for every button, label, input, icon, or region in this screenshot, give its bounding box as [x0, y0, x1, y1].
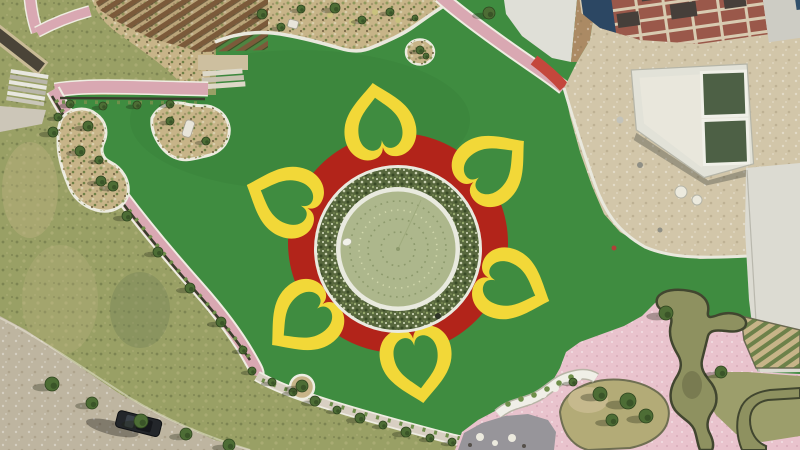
- round-tank: [692, 195, 702, 205]
- round-tank: [675, 186, 687, 198]
- debris: [658, 228, 663, 233]
- tree-canopy-core: [189, 287, 194, 292]
- tree-canopy-core: [301, 385, 306, 390]
- tree-canopy-core: [405, 431, 410, 436]
- bench-plant: [518, 396, 524, 402]
- tree-canopy-core: [429, 437, 433, 441]
- water-tank-north: [701, 71, 747, 117]
- tree-canopy-core: [300, 8, 304, 12]
- bench-plant: [531, 392, 537, 398]
- grass-dark-patch: [110, 272, 170, 348]
- tree-canopy-core: [314, 400, 319, 405]
- tree-canopy-core: [169, 103, 173, 107]
- tree-canopy-core: [626, 399, 633, 406]
- debris: [612, 246, 617, 251]
- tree-canopy-core: [126, 215, 131, 220]
- tree-canopy-core: [488, 12, 493, 17]
- fountain-pond: [314, 165, 482, 333]
- tree-canopy-core: [451, 441, 455, 445]
- tree-canopy-core: [112, 185, 117, 190]
- grass-tuft: [372, 9, 378, 15]
- tree-canopy-core: [136, 104, 140, 108]
- tree-canopy-core: [261, 13, 266, 18]
- debris: [637, 162, 643, 168]
- paving-object: [522, 444, 526, 448]
- tree-canopy-core: [382, 424, 386, 428]
- tree-canopy-core: [157, 251, 162, 256]
- water-tank-south: [703, 119, 749, 165]
- tree-canopy-core: [389, 11, 393, 15]
- tree-canopy-core: [220, 321, 225, 326]
- debris: [617, 117, 624, 124]
- tree-canopy-core: [359, 417, 364, 422]
- tree-canopy-core: [280, 26, 284, 30]
- tree-canopy-core: [51, 383, 57, 389]
- terrace: [198, 55, 248, 70]
- tree-canopy-core: [334, 7, 339, 12]
- tree-canopy-core: [57, 116, 61, 120]
- grass-tuft: [395, 17, 401, 23]
- bench-plant: [556, 380, 562, 386]
- bench-plant: [505, 401, 511, 407]
- tree-canopy-core: [720, 371, 725, 376]
- tree-canopy-core: [69, 103, 73, 107]
- tree-canopy-core: [205, 140, 209, 144]
- tree-canopy-core: [169, 120, 173, 124]
- tree-canopy-core: [87, 125, 92, 130]
- tree-canopy-core: [185, 433, 190, 438]
- tree-canopy-core: [425, 55, 428, 58]
- path-east-west: [55, 87, 208, 90]
- bench-plant: [544, 386, 550, 392]
- tree-canopy-core: [102, 105, 106, 109]
- tree-canopy-core: [271, 381, 275, 385]
- dry-grass-patch: [2, 142, 58, 238]
- tree-canopy-core: [228, 444, 233, 449]
- paving-object: [468, 443, 472, 447]
- tree-canopy-core: [419, 49, 423, 53]
- tree-canopy-core: [665, 312, 671, 318]
- tree-canopy-core: [611, 419, 616, 424]
- tree-canopy-core: [98, 159, 102, 163]
- tree-canopy-core: [414, 17, 417, 20]
- tree-canopy-core: [251, 370, 255, 374]
- tree-canopy-core: [361, 19, 365, 23]
- pond-center-jet: [396, 247, 400, 251]
- paving-object: [476, 433, 484, 441]
- tree-canopy-core: [79, 150, 84, 155]
- tree-canopy-core: [645, 415, 651, 421]
- tree-canopy-core: [572, 381, 576, 385]
- pond-dark-object: [435, 313, 441, 319]
- tree-canopy-core: [242, 349, 246, 353]
- tree-canopy-core: [140, 420, 146, 426]
- tree-canopy-core: [91, 402, 96, 407]
- channel-deep: [682, 371, 702, 399]
- tree-canopy-core: [100, 180, 105, 185]
- tree-canopy-core: [52, 131, 57, 136]
- paving-object: [492, 440, 498, 446]
- tree-canopy-core: [336, 409, 340, 413]
- aerial-park-photo: [0, 0, 800, 450]
- tree-canopy-core: [599, 393, 605, 399]
- paving-object: [508, 434, 516, 442]
